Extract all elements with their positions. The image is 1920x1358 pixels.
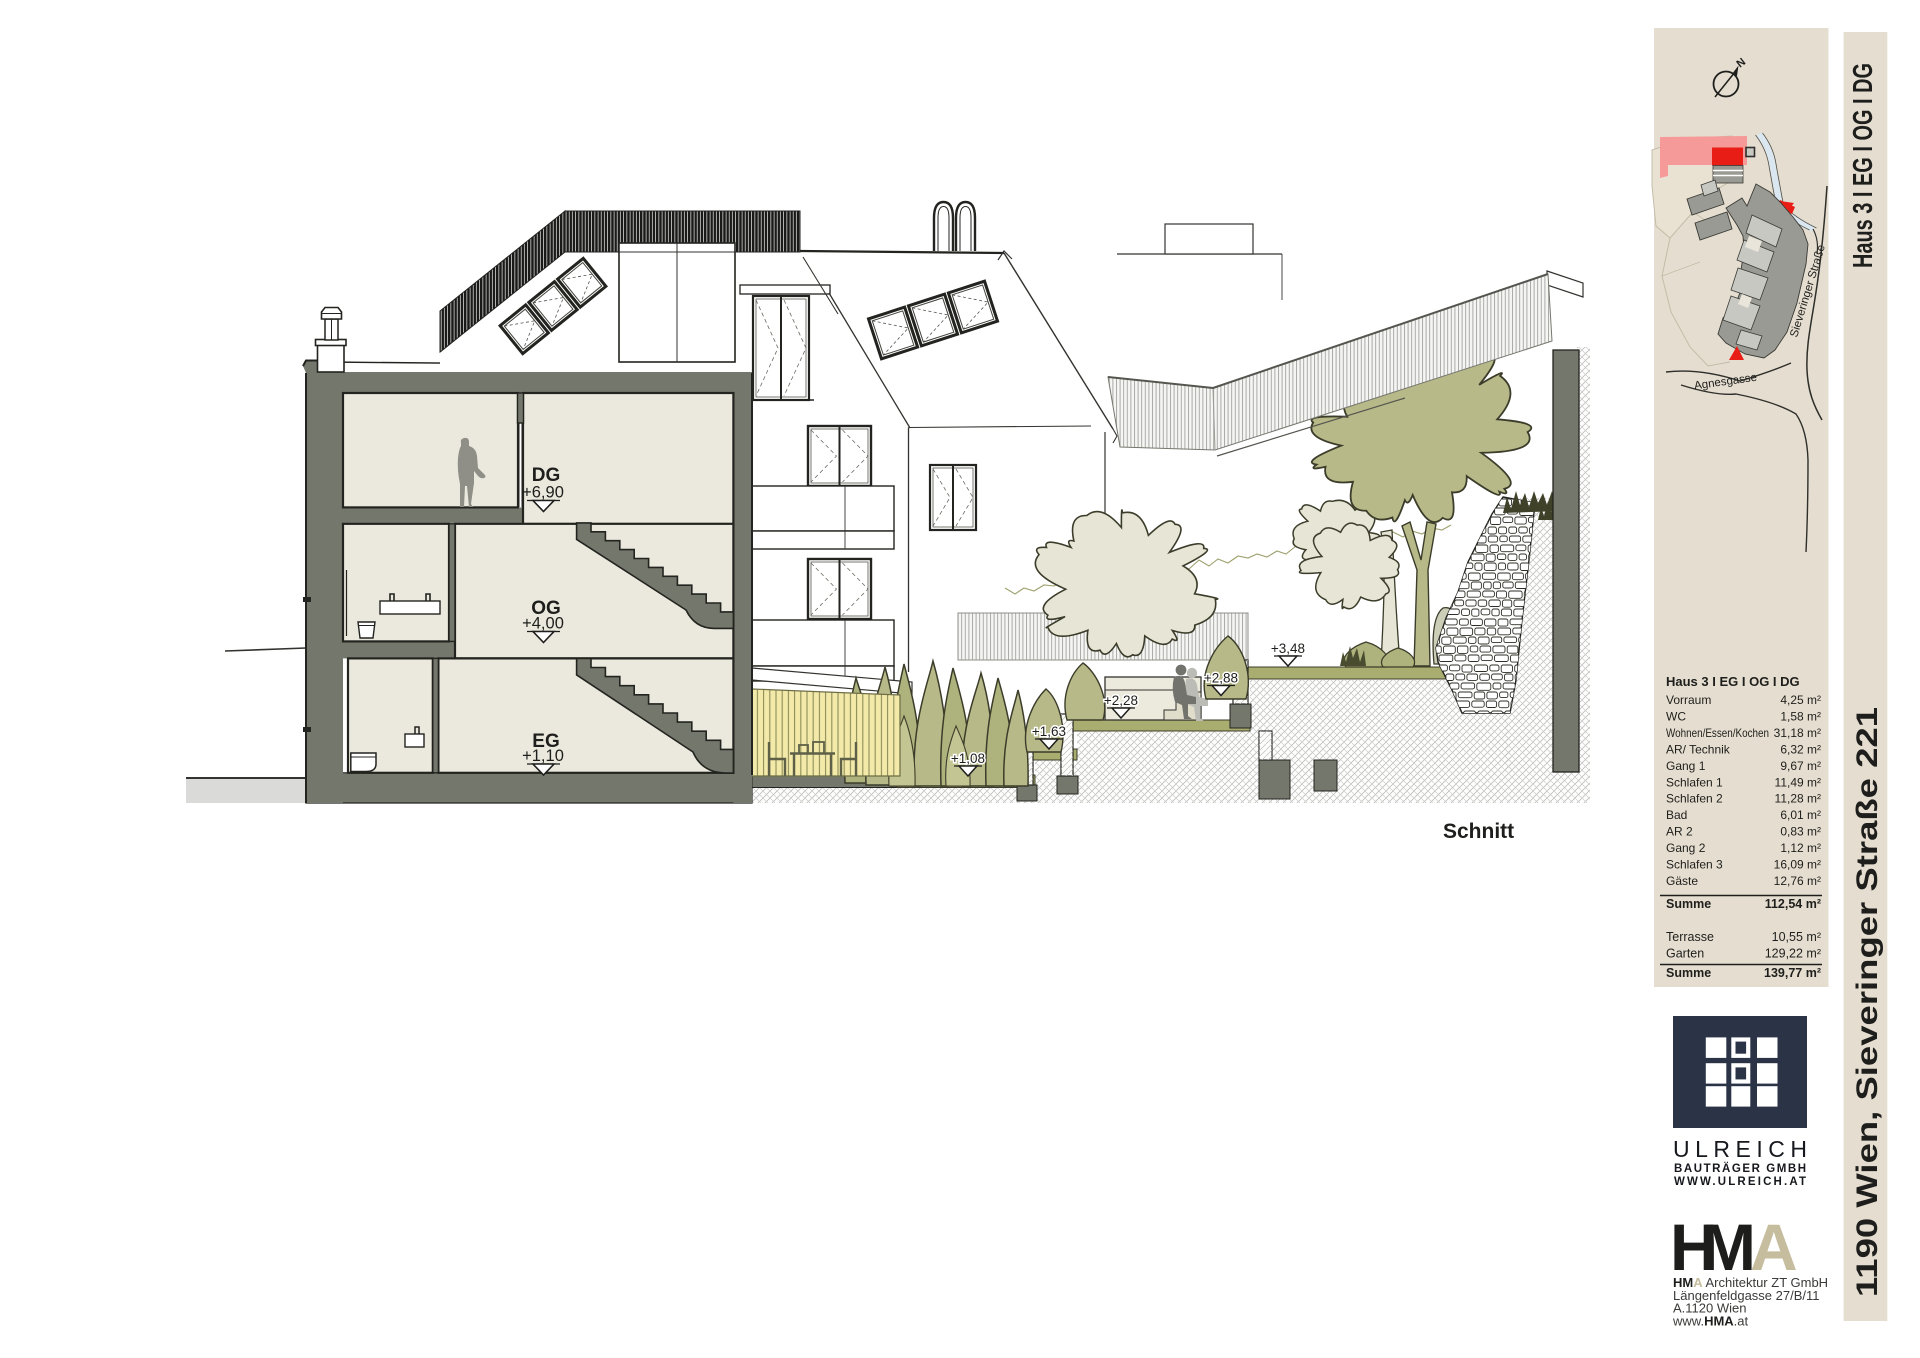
svg-text:+4,00: +4,00 <box>522 615 564 633</box>
svg-text:+2,88: +2,88 <box>1204 671 1238 686</box>
svg-text:10,55 m²: 10,55 m² <box>1772 930 1821 944</box>
svg-text:0,83 m²: 0,83 m² <box>1780 825 1821 839</box>
svg-text:1,12 m²: 1,12 m² <box>1780 841 1821 855</box>
svg-text:Haus 3 I EG I OG I DG: Haus 3 I EG I OG I DG <box>1847 63 1878 268</box>
svg-text:Schlafen 1: Schlafen 1 <box>1666 775 1723 789</box>
svg-text:+2,28: +2,28 <box>1104 693 1138 708</box>
svg-text:112,54 m²: 112,54 m² <box>1765 897 1821 911</box>
svg-text:+1,10: +1,10 <box>522 747 564 765</box>
svg-text:Schnitt: Schnitt <box>1443 820 1514 843</box>
svg-text:Schlafen 3: Schlafen 3 <box>1666 858 1723 872</box>
svg-text:+1,63: +1,63 <box>1032 724 1066 739</box>
svg-text:Vorraum: Vorraum <box>1666 693 1711 707</box>
svg-text:Summe: Summe <box>1666 966 1711 980</box>
svg-text:Gang 2: Gang 2 <box>1666 841 1706 855</box>
svg-text:+1,08: +1,08 <box>951 751 985 766</box>
svg-text:6,32 m²: 6,32 m² <box>1780 742 1821 756</box>
svg-text:11,49 m²: 11,49 m² <box>1775 775 1821 789</box>
svg-text:Summe: Summe <box>1666 897 1711 911</box>
svg-text:A: A <box>1750 1210 1798 1284</box>
svg-text:Bad: Bad <box>1666 808 1687 822</box>
svg-text:Wohnen/Essen/Kochen: Wohnen/Essen/Kochen <box>1666 726 1769 740</box>
svg-text:1,58 m²: 1,58 m² <box>1780 709 1821 723</box>
svg-text:Haus 3 I EG I OG I DG: Haus 3 I EG I OG I DG <box>1666 674 1800 689</box>
svg-text:+3,48: +3,48 <box>1271 641 1305 656</box>
svg-text:31,18 m²: 31,18 m² <box>1774 726 1821 740</box>
svg-text:16,09 m²: 16,09 m² <box>1774 858 1821 872</box>
svg-text:4,25 m²: 4,25 m² <box>1780 693 1821 707</box>
svg-text:129,22 m²: 129,22 m² <box>1765 947 1821 961</box>
svg-text:6,01 m²: 6,01 m² <box>1780 808 1821 822</box>
svg-text:AR/ Technik: AR/ Technik <box>1666 742 1731 756</box>
svg-text:139,77 m²: 139,77 m² <box>1764 966 1821 980</box>
svg-text:9,67 m²: 9,67 m² <box>1780 759 1821 773</box>
svg-text:WC: WC <box>1666 709 1686 723</box>
svg-text:12,76 m²: 12,76 m² <box>1774 874 1821 888</box>
svg-text:AR 2: AR 2 <box>1666 825 1693 839</box>
svg-text:11,28 m²: 11,28 m² <box>1775 792 1821 806</box>
svg-text:Gang 1: Gang 1 <box>1666 759 1706 773</box>
svg-text:Terrasse: Terrasse <box>1666 930 1714 944</box>
svg-text:BAUTRÄGER GMBH: BAUTRÄGER GMBH <box>1674 1162 1806 1175</box>
svg-text:Garten: Garten <box>1666 947 1704 961</box>
svg-text:+6,90: +6,90 <box>522 484 564 502</box>
svg-text:Schlafen 2: Schlafen 2 <box>1666 792 1723 806</box>
svg-text:WWW.ULREICH.AT: WWW.ULREICH.AT <box>1674 1176 1806 1188</box>
svg-text:HM: HM <box>1670 1210 1756 1284</box>
svg-text:Gäste: Gäste <box>1666 874 1698 888</box>
svg-text:1190 Wien, Sieveringer Straße: 1190 Wien, Sieveringer Straße 221 <box>1851 707 1884 1297</box>
svg-text:www.HMA.at: www.HMA.at <box>1672 1313 1749 1328</box>
